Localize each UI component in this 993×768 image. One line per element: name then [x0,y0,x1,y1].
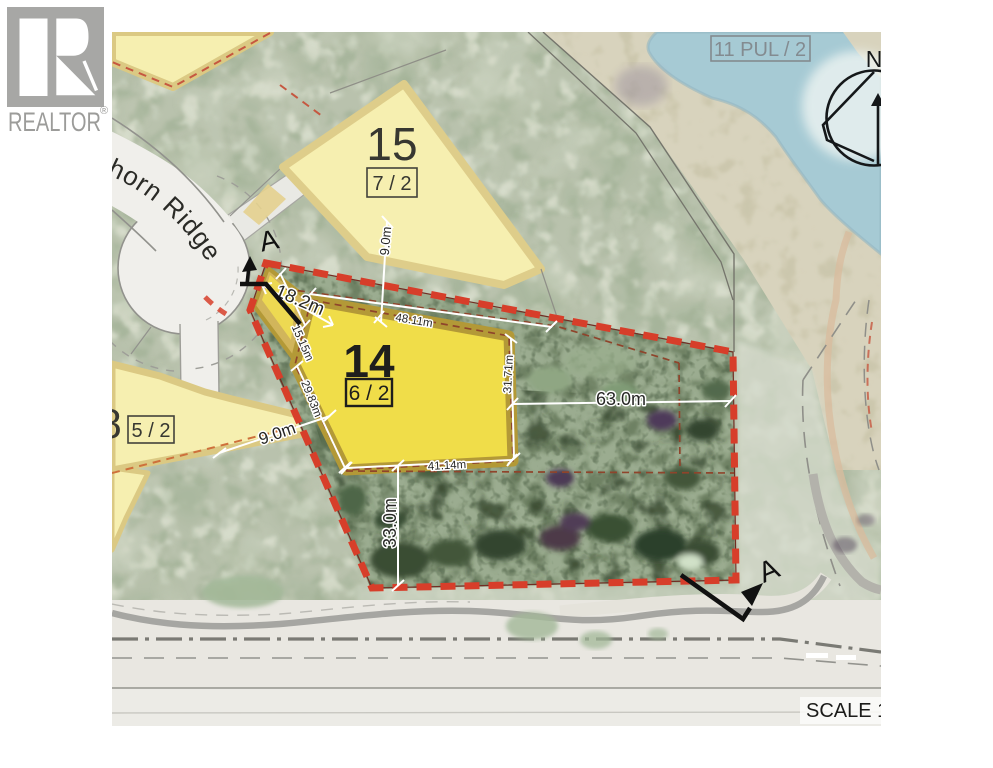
svg-text:N: N [866,46,883,72]
svg-text:REALTOR: REALTOR [8,107,101,137]
svg-text:®: ® [100,105,108,117]
svg-text:SCALE 1:: SCALE 1: [806,700,894,722]
